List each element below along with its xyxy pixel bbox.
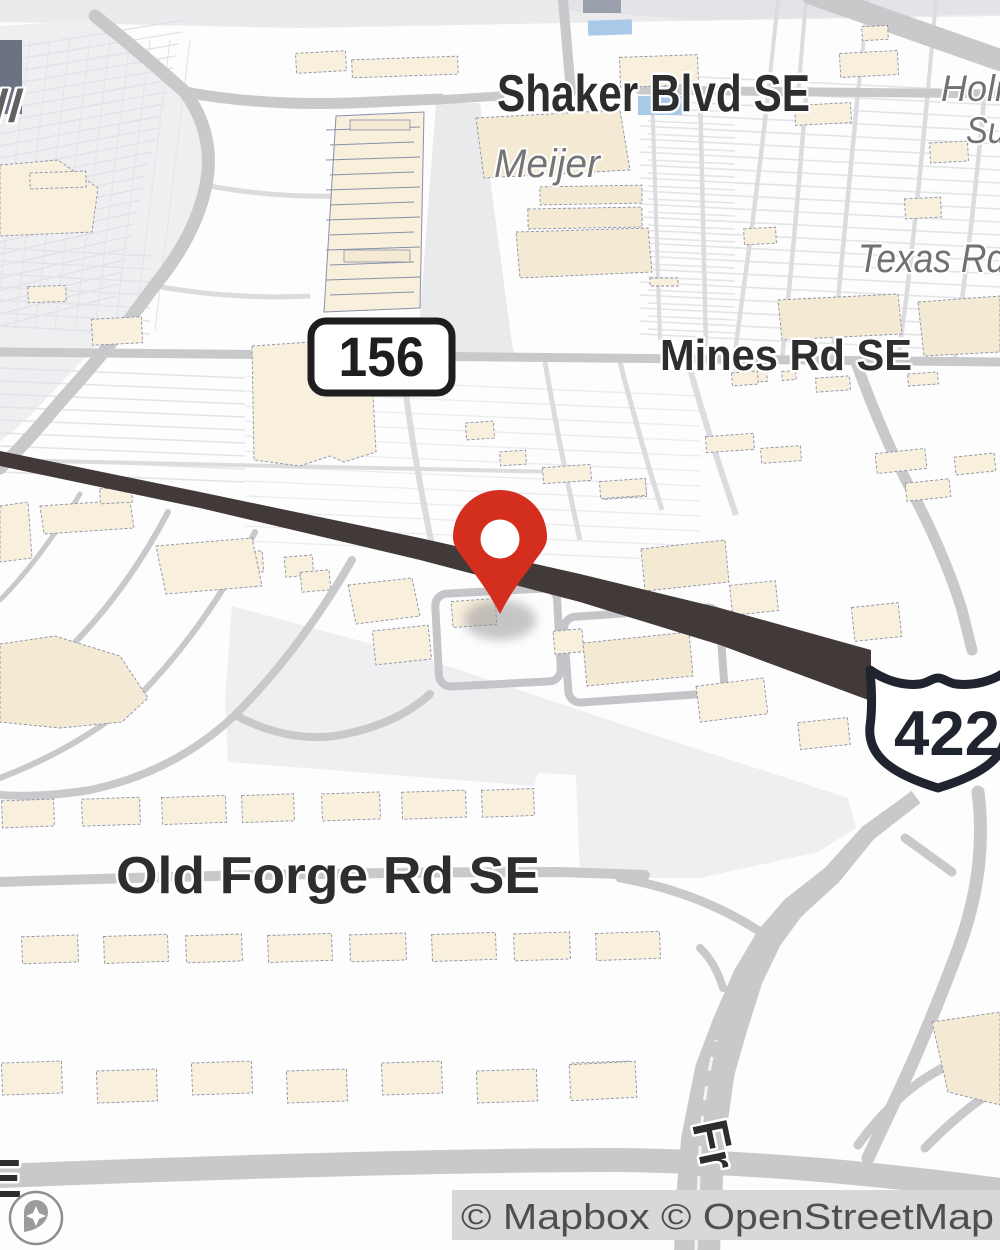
- svg-text:Meijer: Meijer: [494, 142, 602, 186]
- svg-text:Mines Rd SE: Mines Rd SE: [660, 331, 912, 380]
- svg-text:Shaker Blvd SE: Shaker Blvd SE: [497, 65, 810, 123]
- svg-text:Old Forge Rd SE: Old Forge Rd SE: [116, 847, 540, 905]
- svg-text:© Mapbox © OpenStreetMap: © Mapbox © OpenStreetMap: [461, 1196, 994, 1237]
- svg-text:156: 156: [339, 325, 425, 388]
- svg-text:Su: Su: [966, 110, 1000, 151]
- svg-text:Texas Rd: Texas Rd: [858, 237, 1000, 281]
- svg-text:ll: ll: [0, 80, 25, 132]
- svg-text:Holi: Holi: [941, 68, 1000, 109]
- svg-text:422: 422: [894, 699, 1000, 769]
